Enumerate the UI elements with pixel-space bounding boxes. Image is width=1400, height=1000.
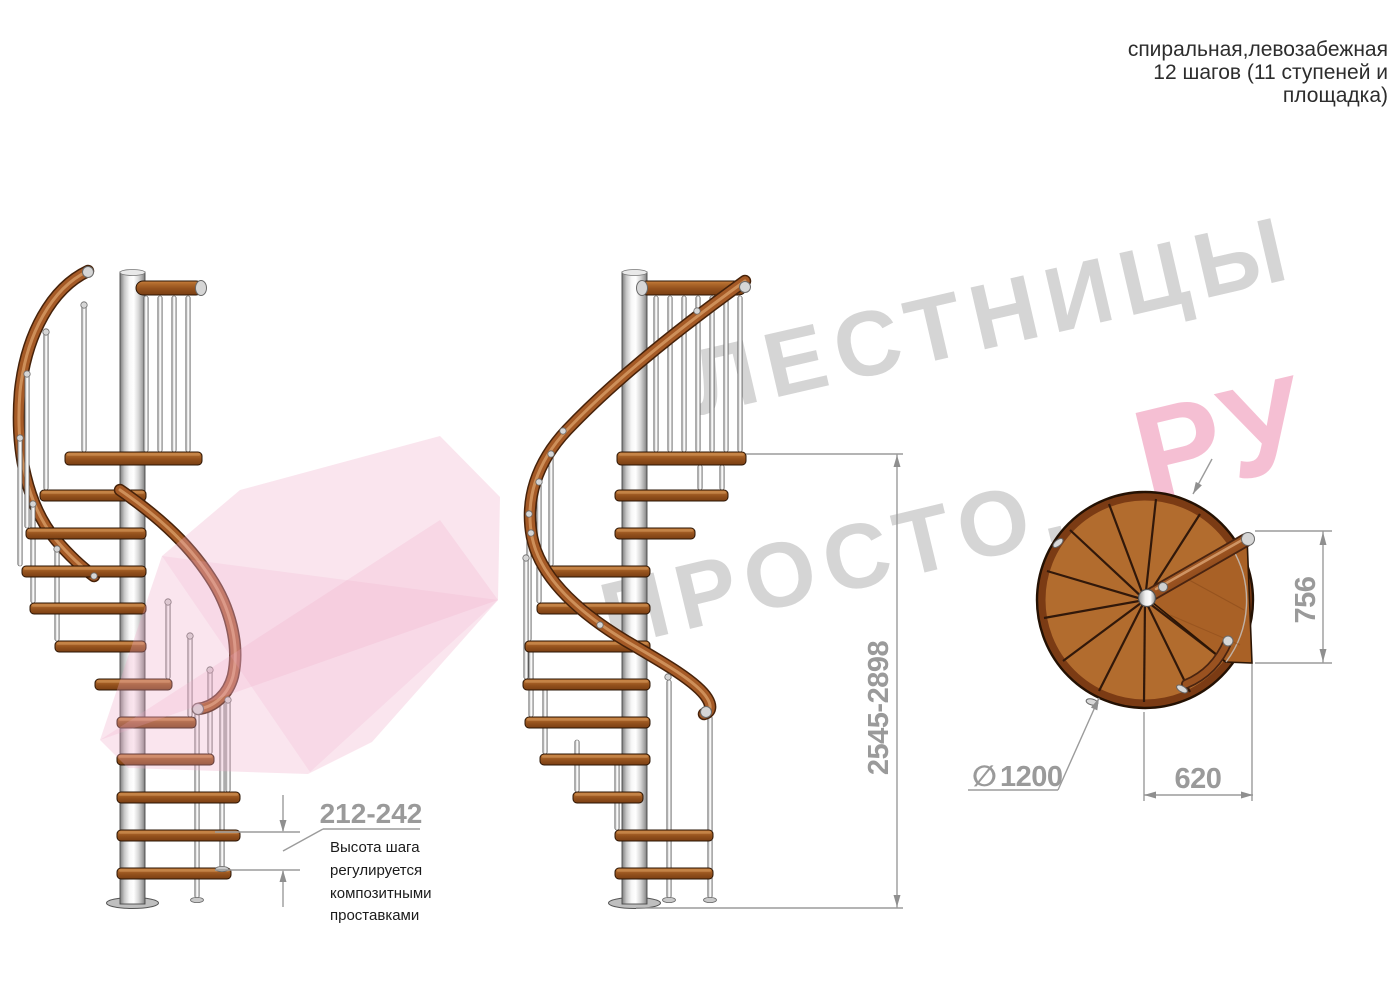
step-tread-highlight (617, 491, 726, 494)
baluster (82, 303, 86, 452)
landing-width-dimension: 620 (1175, 763, 1222, 795)
baluster (172, 296, 176, 452)
baluster (668, 296, 672, 452)
handrail-ball-end (701, 707, 712, 718)
pole-top-cap (622, 270, 647, 276)
step-tread-highlight (67, 453, 200, 456)
step-height-note-line4: проставками (330, 907, 419, 924)
center-pole-top (1139, 590, 1156, 607)
diameter-dimension: 1200 (1000, 761, 1063, 793)
connector-node (536, 479, 542, 485)
step-height-note-line3: композитными (330, 885, 432, 902)
drawing-description: спиральная,левозабежная 12 шагов (11 сту… (1128, 38, 1388, 107)
support-foot (704, 897, 717, 902)
baluster (44, 330, 48, 490)
pole-top-cap (120, 270, 145, 276)
diameter-symbol: ∅ (972, 761, 996, 793)
step-tread-highlight (617, 831, 711, 834)
description-line3: площадка) (1283, 84, 1388, 107)
step-tread-highlight (24, 567, 144, 570)
baluster (55, 547, 59, 641)
staircase-technical-drawing: ЛЕСТНИЦЫ ПРОСТО. РУ (0, 0, 1400, 1000)
landing-handrail (136, 281, 203, 295)
baluster (738, 296, 742, 452)
total-height-dimension: 2545-2898 (863, 641, 895, 776)
handrail-start-cap (740, 282, 751, 293)
connector-node (24, 371, 30, 377)
plan-view (1037, 492, 1255, 708)
connector-node (665, 674, 671, 680)
step-tread-highlight (617, 529, 693, 532)
step-tread-highlight (549, 567, 648, 570)
connector-node (528, 530, 534, 536)
connector-node (523, 555, 529, 561)
step-tread-highlight (617, 869, 711, 872)
baluster (31, 502, 35, 603)
connector-node (30, 501, 36, 507)
baluster (724, 296, 728, 452)
step-tread-highlight (542, 755, 648, 758)
step-tread-highlight (28, 529, 144, 532)
baluster (524, 556, 528, 679)
connector-node (81, 302, 87, 308)
baluster (667, 680, 671, 898)
baluster (158, 296, 162, 452)
baluster (186, 296, 190, 452)
step-tread-highlight (119, 869, 229, 872)
step-tread-highlight (32, 604, 144, 607)
arrow-watermark (100, 436, 500, 774)
rail-cap (1223, 636, 1233, 646)
baluster (144, 296, 148, 452)
landing-depth-dimension: 756 (1290, 576, 1322, 623)
step-tread-highlight (575, 793, 641, 796)
connector-node (43, 329, 49, 335)
connector-node (597, 622, 603, 628)
baluster (25, 372, 29, 528)
baluster (549, 452, 553, 566)
baluster (654, 296, 658, 452)
step-tread-highlight (57, 642, 144, 645)
rail-collar (1159, 583, 1168, 592)
support-foot (216, 866, 229, 871)
connector-node (560, 428, 566, 434)
rail-cap (1242, 533, 1255, 546)
connector-node (17, 435, 23, 441)
step-height-note-line1: Высота шага (330, 839, 420, 856)
handrail-end-cap (196, 281, 207, 296)
description-line2: 12 шагов (11 ступеней и (1153, 61, 1388, 84)
baluster (720, 465, 724, 490)
center-pole (120, 272, 145, 904)
step-tread-highlight (539, 604, 648, 607)
step-height-note-line2: регулируется (330, 862, 422, 879)
connector-node (694, 308, 700, 314)
handrail-start-cap (83, 267, 94, 278)
connector-node (54, 546, 60, 552)
support-foot (663, 897, 676, 902)
baluster (710, 296, 714, 452)
baluster (698, 465, 702, 490)
step-tread-highlight (119, 793, 238, 796)
step-tread-highlight (527, 718, 648, 721)
drawing-page: ЛЕСТНИЦЫ ПРОСТО. РУ (0, 0, 1400, 1000)
connector-node (91, 573, 97, 579)
watermark-line2: ПРОСТО. (591, 456, 1084, 668)
support-feet-group (663, 897, 717, 902)
support-foot (191, 897, 204, 902)
step-tread-highlight (619, 453, 744, 456)
baluster (18, 436, 22, 566)
handrail-end-cap (637, 281, 648, 296)
baluster (575, 740, 579, 792)
step-tread-highlight (525, 680, 648, 683)
connector-node (548, 451, 554, 457)
step-height-dimension: 212-242 (320, 798, 423, 829)
description-line1: спиральная,левозабежная (1128, 38, 1388, 61)
connector-node (526, 511, 532, 517)
landing-fence (136, 281, 207, 296)
